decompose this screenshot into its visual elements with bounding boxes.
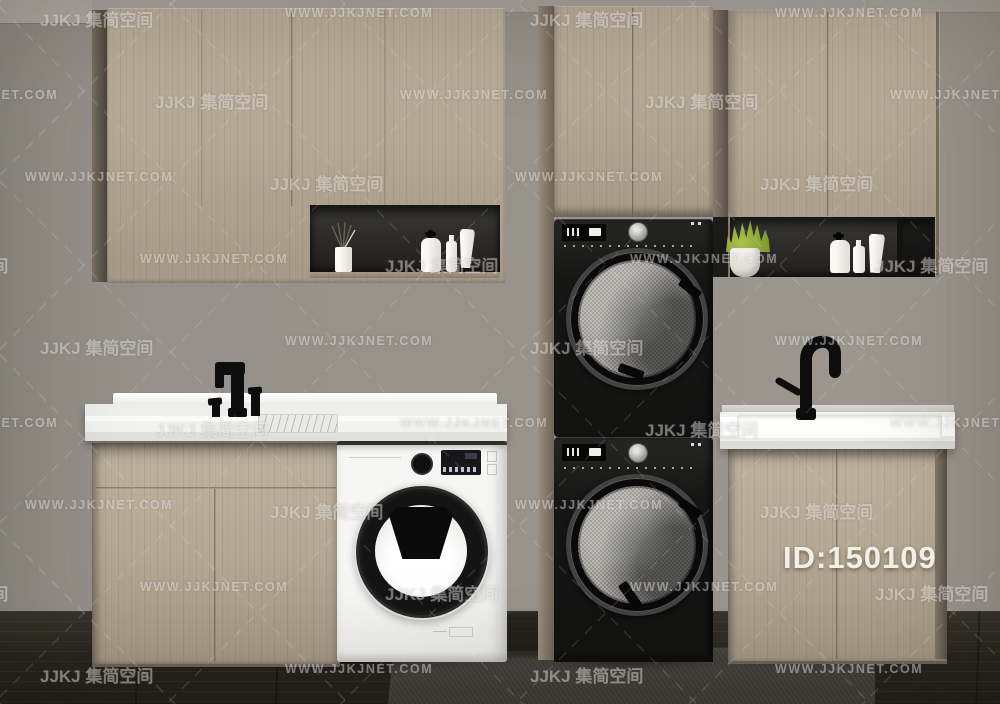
watermark-site-text: WWW.JJKJNET.COM xyxy=(515,170,663,184)
watermark-logo-text: JJKJ 集简空间 xyxy=(40,6,153,31)
watermark-site-text: WWW.JJKJNET.COM xyxy=(775,334,923,348)
watermark-logo-text: JJKJ 集简空间 xyxy=(875,580,988,605)
watermark-logo-text: JJKJ 集简空间 xyxy=(385,580,498,605)
watermark-site-text: WWW.JJKJNET.COM xyxy=(400,88,548,102)
watermark-logo-text: JJKJ 集简空间 xyxy=(875,252,988,277)
watermark-logo-text: JJKJ 集简空间 xyxy=(385,252,498,277)
watermark-site-text: WWW.JJKJNET.COM xyxy=(890,416,1000,430)
watermark-logo-text: JJKJ 集简空间 xyxy=(530,334,643,359)
watermark-site-text: WWW.JJKJNET.COM xyxy=(285,662,433,676)
watermark-logo-text: JJKJ 集简空间 xyxy=(645,88,758,113)
watermark-site-text: WWW.JJKJNET.COM xyxy=(775,662,923,676)
laundry-room-render: ID:150109 JJKJ 集简空间WWW.JJKJNET.COMJJKJ 集… xyxy=(0,0,1000,704)
watermark-site-text: WWW.JJKJNET.COM xyxy=(630,580,778,594)
watermark-site-text: WWW.JJKJNET.COM xyxy=(0,88,58,102)
watermark-site-text: WWW.JJKJNET.COM xyxy=(285,334,433,348)
watermark-logo-text: JJKJ 集简空间 xyxy=(760,170,873,195)
watermark-logo-text: JJKJ 集简空间 xyxy=(40,334,153,359)
watermark-site-text: WWW.JJKJNET.COM xyxy=(515,498,663,512)
watermark-logo-text: JJKJ 集简空间 xyxy=(645,416,758,441)
watermark-site-text: WWW.JJKJNET.COM xyxy=(25,498,173,512)
watermark-logo-text: JJKJ 集简空间 xyxy=(0,580,8,605)
watermark-site-text: WWW.JJKJNET.COM xyxy=(140,252,288,266)
id-badge: ID:150109 xyxy=(783,540,937,576)
watermark-logo-text: JJKJ 集简空间 xyxy=(530,6,643,31)
watermark-site-text: WWW.JJKJNET.COM xyxy=(140,580,288,594)
watermark-layer: JJKJ 集简空间WWW.JJKJNET.COMJJKJ 集简空间WWW.JJK… xyxy=(0,0,1000,704)
watermark-site-text: WWW.JJKJNET.COM xyxy=(285,6,433,20)
watermark-site-text: WWW.JJKJNET.COM xyxy=(775,6,923,20)
watermark-logo-text: JJKJ 集简空间 xyxy=(0,252,8,277)
watermark-site-text: WWW.JJKJNET.COM xyxy=(400,416,548,430)
watermark-logo-text: JJKJ 集简空间 xyxy=(530,662,643,687)
watermark-site-text: WWW.JJKJNET.COM xyxy=(890,88,1000,102)
watermark-logo-text: JJKJ 集简空间 xyxy=(40,662,153,687)
watermark-site-text: WWW.JJKJNET.COM xyxy=(25,170,173,184)
watermark-site-text: WWW.JJKJNET.COM xyxy=(630,252,778,266)
watermark-logo-text: JJKJ 集简空间 xyxy=(760,498,873,523)
watermark-logo-text: JJKJ 集简空间 xyxy=(270,498,383,523)
watermark-site-text: WWW.JJKJNET.COM xyxy=(0,416,58,430)
watermark-logo-text: JJKJ 集简空间 xyxy=(155,416,268,441)
watermark-logo-text: JJKJ 集简空间 xyxy=(155,88,268,113)
watermark-logo-text: JJKJ 集简空间 xyxy=(270,170,383,195)
